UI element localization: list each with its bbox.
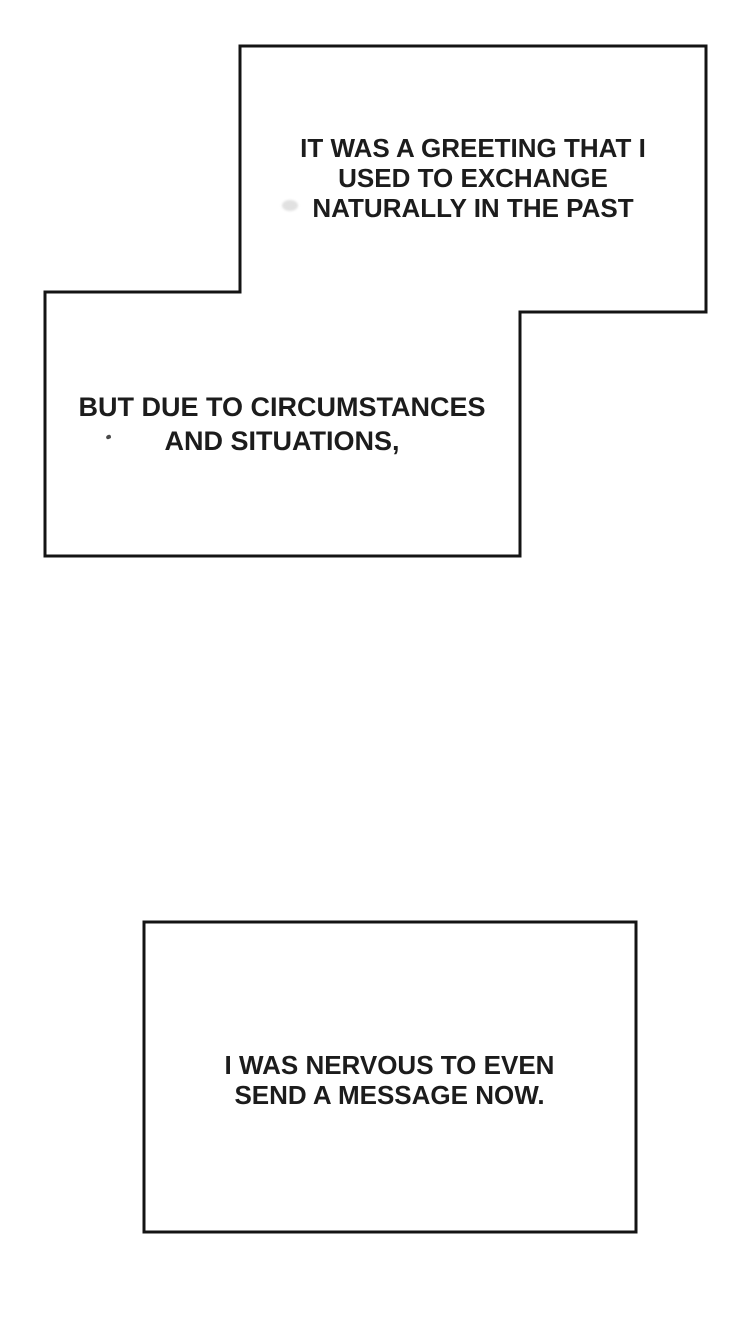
caption-line: IT WAS A GREETING THAT I — [240, 133, 706, 163]
comic-page: IT WAS A GREETING THAT I USED TO EXCHANG… — [0, 0, 748, 1331]
caption-line: I WAS NERVOUS TO EVEN — [143, 1050, 636, 1080]
narration-bottom: I WAS NERVOUS TO EVEN SEND A MESSAGE NOW… — [143, 1050, 636, 1110]
caption-line: SEND A MESSAGE NOW. — [143, 1080, 636, 1110]
caption-line: USED TO EXCHANGE — [240, 163, 706, 193]
narration-middle: BUT DUE TO CIRCUMSTANCES AND SITUATIONS, — [44, 390, 520, 458]
caption-line: NATURALLY IN THE PAST — [240, 193, 706, 223]
caption-line: AND SITUATIONS, — [44, 424, 520, 458]
caption-line: BUT DUE TO CIRCUMSTANCES — [44, 390, 520, 424]
narration-top: IT WAS A GREETING THAT I USED TO EXCHANG… — [240, 133, 706, 223]
panel-top-middle-outline — [45, 46, 706, 556]
eraser-smudge — [282, 200, 298, 211]
